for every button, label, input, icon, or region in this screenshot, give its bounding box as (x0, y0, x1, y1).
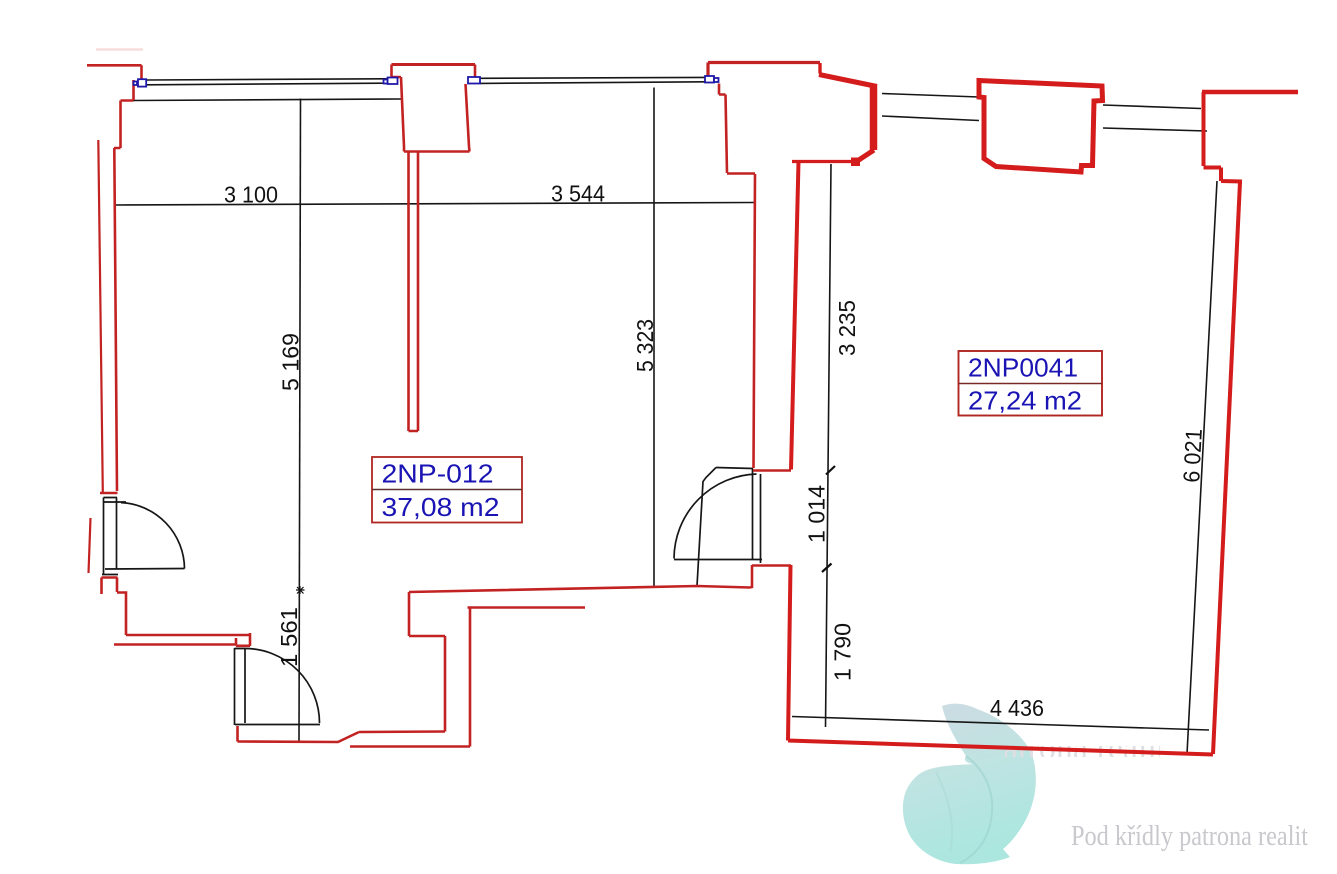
svg-text:37,08 m2: 37,08 m2 (382, 492, 500, 522)
svg-text:27,24 m2: 27,24 m2 (968, 386, 1082, 416)
svg-text:Pod křídly patrona realit: Pod křídly patrona realit (1071, 820, 1308, 852)
svg-text:6 021: 6 021 (1178, 428, 1207, 483)
svg-text:4 436: 4 436 (990, 695, 1044, 721)
svg-text:5 169: 5 169 (278, 333, 304, 391)
svg-text:5 323: 5 323 (632, 319, 658, 372)
svg-text:2NP-012: 2NP-012 (382, 459, 494, 489)
svg-text:1 790: 1 790 (830, 623, 856, 681)
svg-text:1 014: 1 014 (804, 485, 830, 543)
svg-text:3 544: 3 544 (551, 181, 605, 207)
svg-text:3 235: 3 235 (834, 300, 860, 356)
svg-text:2NP0041: 2NP0041 (968, 353, 1078, 383)
svg-text:1 561: 1 561 (276, 607, 302, 667)
svg-text:3 100: 3 100 (224, 182, 278, 208)
